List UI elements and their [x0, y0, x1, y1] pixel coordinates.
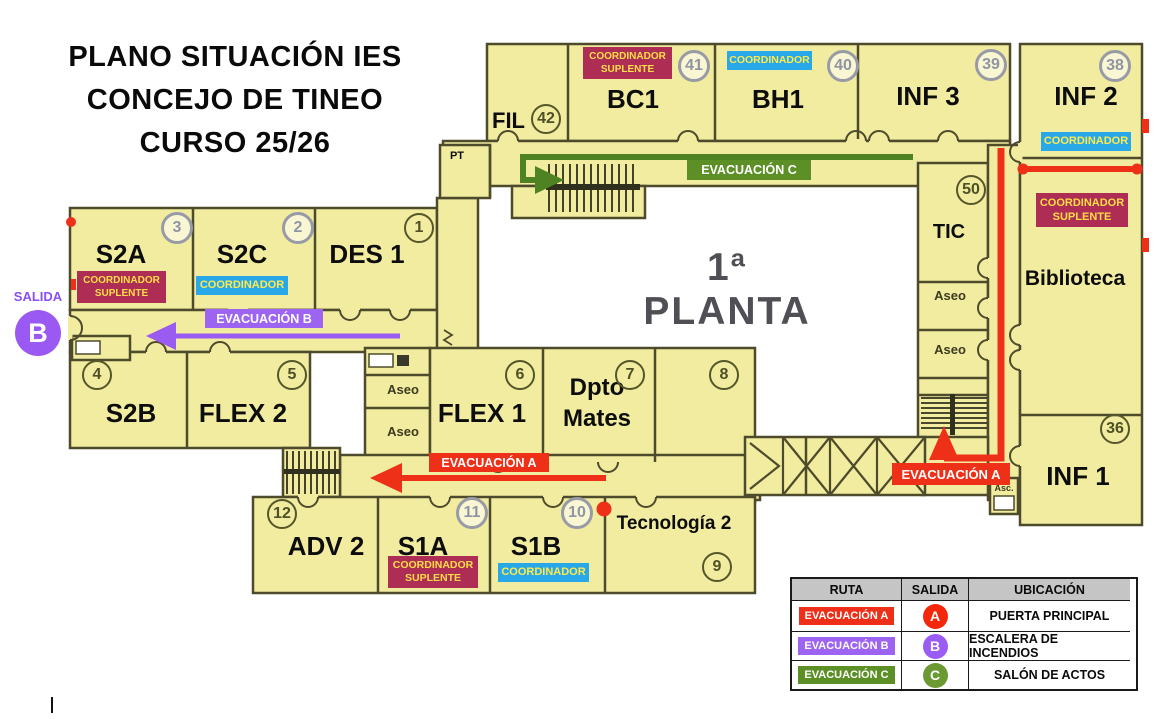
room-label-inf1: INF 1 [1018, 461, 1138, 492]
badge-coordinador-suplente-biblioteca: COORDINADOR SUPLENTE [1036, 193, 1128, 227]
badge-coordinador-suplente-bc1: COORDINADOR SUPLENTE [583, 47, 672, 79]
evacuation-floor-plan: PLANO SITUACIÓN IES CONCEJO DE TINEO CUR… [0, 0, 1157, 719]
room-label-s2b: S2B [71, 398, 191, 429]
badge-evacuacion-b: EVACUACIÓN B [205, 309, 323, 328]
legend-row-c-location: SALÓN DE ACTOS [969, 661, 1130, 689]
badge-coordinador-suplente-s2a: COORDINADOR SUPLENTE [77, 271, 166, 303]
badge-evacuacion-c: EVACUACIÓN C [687, 160, 811, 180]
badge-coordinador-inf2: COORDINADOR [1041, 132, 1131, 151]
badge-coordinador-s1b: COORDINADOR [498, 563, 589, 582]
room-number-2: 2 [282, 212, 314, 244]
legend-header-ubicacion: UBICACIÓN [969, 579, 1130, 601]
room-label-pt: PT [444, 150, 470, 162]
badge-coordinador-suplente-s1a: COORDINADOR SUPLENTE [388, 556, 478, 588]
badge-evacuacion-a-corridor: EVACUACIÓN A [429, 453, 549, 472]
room-number-12: 12 [267, 499, 297, 529]
exit-b-label: SALIDA [10, 289, 66, 304]
room-number-1: 1 [404, 213, 434, 243]
floor-label: 1ª PLANTA [617, 246, 837, 334]
room-number-10: 10 [561, 497, 593, 529]
elevator-inner-box [994, 496, 1014, 510]
room-label-flex1: FLEX 1 [422, 398, 542, 429]
room-label-biblioteca: Biblioteca [1015, 267, 1135, 291]
legend-row-c-letter: C [902, 661, 969, 689]
room-number-7: 7 [615, 360, 645, 390]
room-label-inf2: INF 2 [1026, 81, 1146, 112]
page-title: PLANO SITUACIÓN IES CONCEJO DE TINEO CUR… [40, 36, 430, 165]
room-label-aseo-1: Aseo [925, 288, 975, 303]
badge-coordinador-s2c: COORDINADOR [196, 276, 288, 295]
room-number-5: 5 [277, 360, 307, 390]
legend-row-b-location: ESCALERA DE INCENDIOS [969, 632, 1130, 661]
room-number-11: 11 [456, 497, 488, 529]
top-stairwell [512, 186, 645, 218]
legend-header-salida: SALIDA [902, 579, 969, 601]
room-number-3: 3 [161, 212, 193, 244]
left-junction [437, 198, 478, 352]
room-label-aseo-3: Aseo [378, 382, 428, 397]
legend-row-b-route: EVACUACIÓN B [792, 632, 902, 661]
room-number-36: 36 [1100, 414, 1130, 444]
title-line-1: PLANO SITUACIÓN IES [40, 36, 430, 79]
title-line-3: CURSO 25/26 [40, 122, 430, 165]
room-label-tic: TIC [909, 221, 989, 244]
room-number-42: 42 [531, 104, 561, 134]
room-number-4: 4 [82, 360, 112, 390]
legend-row-a-route: EVACUACIÓN A [792, 601, 902, 632]
room-number-6: 6 [505, 360, 535, 390]
room-label-inf3: INF 3 [868, 81, 988, 112]
room-number-40: 40 [827, 50, 859, 82]
title-line-2: CONCEJO DE TINEO [40, 79, 430, 122]
legend-row-a-letter: A [902, 601, 969, 632]
badge-coordinador-bh1: COORDINADOR [727, 51, 812, 70]
room-label-bc1: BC1 [573, 84, 693, 115]
exit-door-box [76, 341, 100, 354]
room-label-flex2: FLEX 2 [183, 398, 303, 429]
room-label-bh1: BH1 [718, 84, 838, 115]
exit-b-circle: B [15, 310, 61, 356]
room-number-9: 9 [702, 552, 732, 582]
room-label-s2c: S2C [182, 239, 302, 270]
legend-row-c-route: EVACUACIÓN C [792, 661, 902, 689]
text-cursor-artifact [51, 697, 53, 713]
legend-header-ruta: RUTA [792, 579, 902, 601]
legend-row-b-letter: B [902, 632, 969, 661]
badge-evacuacion-a-stairs: EVACUACIÓN A [892, 463, 1010, 485]
room-label-des1: DES 1 [307, 239, 427, 270]
room-number-50: 50 [956, 175, 986, 205]
room-label-aseo-2: Aseo [925, 342, 975, 357]
room-label-tecnologia2: Tecnología 2 [604, 513, 744, 535]
legend-row-a-location: PUERTA PRINCIPAL [969, 601, 1130, 632]
dpto-line2: Mates [537, 403, 657, 434]
room-label-aseo-4: Aseo [378, 424, 428, 439]
room-label-s2a: S2A [61, 239, 181, 270]
room-number-38: 38 [1099, 50, 1131, 82]
room-number-39: 39 [975, 49, 1007, 81]
room-number-8: 8 [709, 360, 739, 390]
room-label-s1b: S1B [476, 531, 596, 562]
legend-table: RUTA SALIDA UBICACIÓN EVACUACIÓN A A PUE… [790, 577, 1138, 691]
room-number-41: 41 [678, 50, 710, 82]
